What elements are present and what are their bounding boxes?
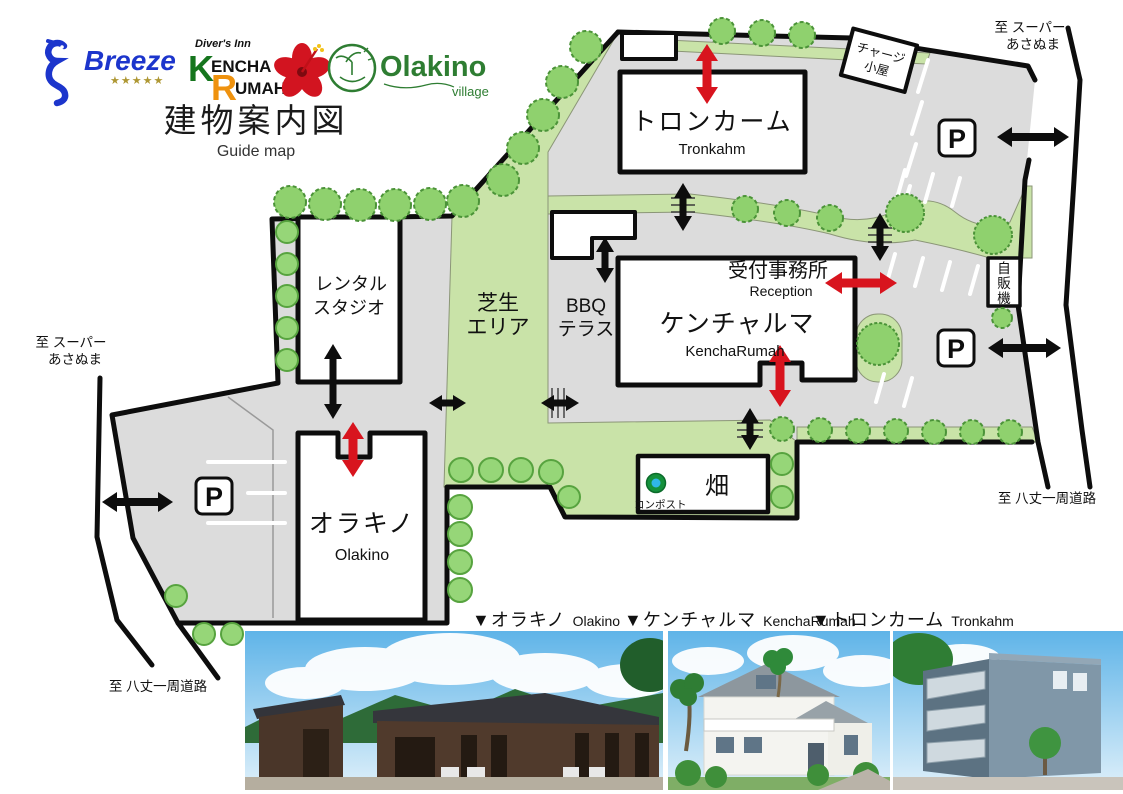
- photo-caption-olakino: ▼オラキノ Olakino: [472, 606, 620, 632]
- kencharumah-label-en: KenchaRumah: [685, 343, 784, 360]
- vending-label-3: 機: [997, 291, 1011, 306]
- guide-map-page: Breeze ★★★★★ Diver's Inn K ENCHA R UMAH: [0, 0, 1123, 794]
- photo-olakino: [245, 631, 663, 790]
- photo-caption-tronkahm: ▼トロンカーム Tronkahm: [812, 606, 1014, 632]
- caption-jp: ▼ケンチャルマ: [624, 606, 756, 632]
- reception-label-en: Reception: [749, 283, 812, 299]
- lawn-label-1: 芝生: [477, 292, 519, 315]
- to-loop-road-label-sw: 至 八丈一周道路: [109, 679, 208, 694]
- vending-label-1: 自: [997, 261, 1011, 276]
- to-supermarket-label-ne-2: あさぬま: [1006, 37, 1060, 52]
- compost-label: コンポスト: [634, 499, 687, 511]
- vending-label-2: 販: [997, 276, 1011, 291]
- caption-en: Olakino: [573, 613, 620, 629]
- tronkahm-label-jp: トロンカーム: [631, 108, 792, 136]
- road-arrow-northeast: [997, 127, 1069, 147]
- photo-kencharumah: [668, 631, 890, 790]
- north-annex-building: [622, 33, 676, 59]
- compost-marker-icon: [647, 474, 666, 493]
- kencharumah-label-jp: ケンチャルマ: [659, 310, 814, 338]
- caption-jp: ▼オラキノ: [472, 606, 566, 632]
- road-east-outer: [1066, 28, 1090, 487]
- photo-tronkahm: [893, 631, 1123, 790]
- reception-label-jp: 受付事務所: [728, 259, 828, 282]
- lawn-label-2: エリア: [467, 316, 530, 339]
- to-supermarket-label-ne-1: 至 スーパー: [994, 20, 1065, 35]
- olakino-label-en: Olakino: [335, 547, 389, 564]
- bbq-label-2: テラス: [558, 319, 615, 340]
- parking-letter: P: [947, 334, 965, 364]
- caption-jp: ▼トロンカーム: [812, 606, 944, 632]
- rental-studio-label-1: レンタル: [315, 274, 387, 294]
- to-supermarket-label-w-1: 至 スーパー: [35, 335, 106, 350]
- field-label: 畑: [705, 473, 729, 500]
- to-supermarket-label-w-2: あさぬま: [48, 352, 102, 367]
- tronkahm-label-en: Tronkahm: [679, 141, 746, 158]
- olakino-label-jp: オラキノ: [309, 510, 415, 538]
- parking-letter: P: [948, 124, 966, 154]
- to-loop-road-label-e: 至 八丈一周道路: [998, 491, 1097, 506]
- caption-en: Tronkahm: [951, 613, 1014, 629]
- parking-letter: P: [205, 482, 223, 512]
- bbq-label-1: BBQ: [566, 296, 606, 317]
- rental-studio-label-2: スタジオ: [313, 298, 385, 318]
